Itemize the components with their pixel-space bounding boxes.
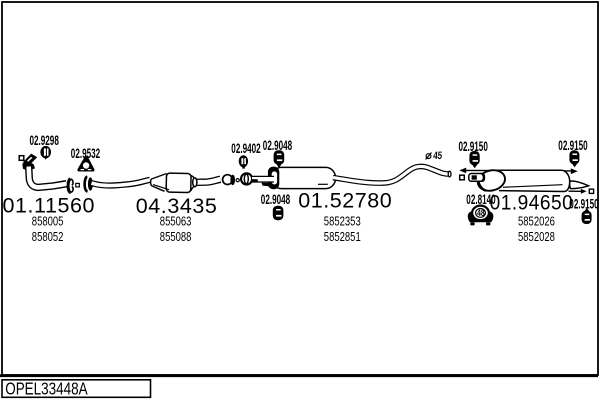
svg-text:02.9150: 02.9150: [569, 197, 598, 212]
svg-text:5852353: 5852353: [324, 215, 361, 229]
svg-text:02.9402: 02.9402: [231, 142, 260, 157]
svg-text:858052: 858052: [32, 231, 64, 245]
svg-text:OPEL33448A: OPEL33448A: [5, 380, 88, 399]
svg-text:5852851: 5852851: [324, 231, 361, 245]
svg-text:02.9150: 02.9150: [459, 140, 488, 155]
svg-text:48: 48: [477, 208, 485, 218]
svg-text:5852028: 5852028: [518, 231, 555, 245]
svg-text:855063: 855063: [160, 215, 192, 229]
svg-text:01.11560: 01.11560: [3, 193, 95, 217]
svg-text:02.9532: 02.9532: [71, 147, 100, 162]
svg-text:02.9048: 02.9048: [261, 193, 291, 208]
svg-text:858005: 858005: [32, 215, 64, 229]
svg-text:5852026: 5852026: [518, 215, 555, 229]
svg-text:855088: 855088: [160, 231, 192, 245]
svg-text:45: 45: [433, 150, 443, 162]
svg-text:01.52780: 01.52780: [298, 189, 392, 213]
svg-text:02.9298: 02.9298: [30, 134, 60, 149]
svg-text:02.9150: 02.9150: [558, 139, 587, 154]
svg-text:01.94650: 01.94650: [490, 192, 574, 215]
svg-text:02.9048: 02.9048: [263, 139, 293, 154]
